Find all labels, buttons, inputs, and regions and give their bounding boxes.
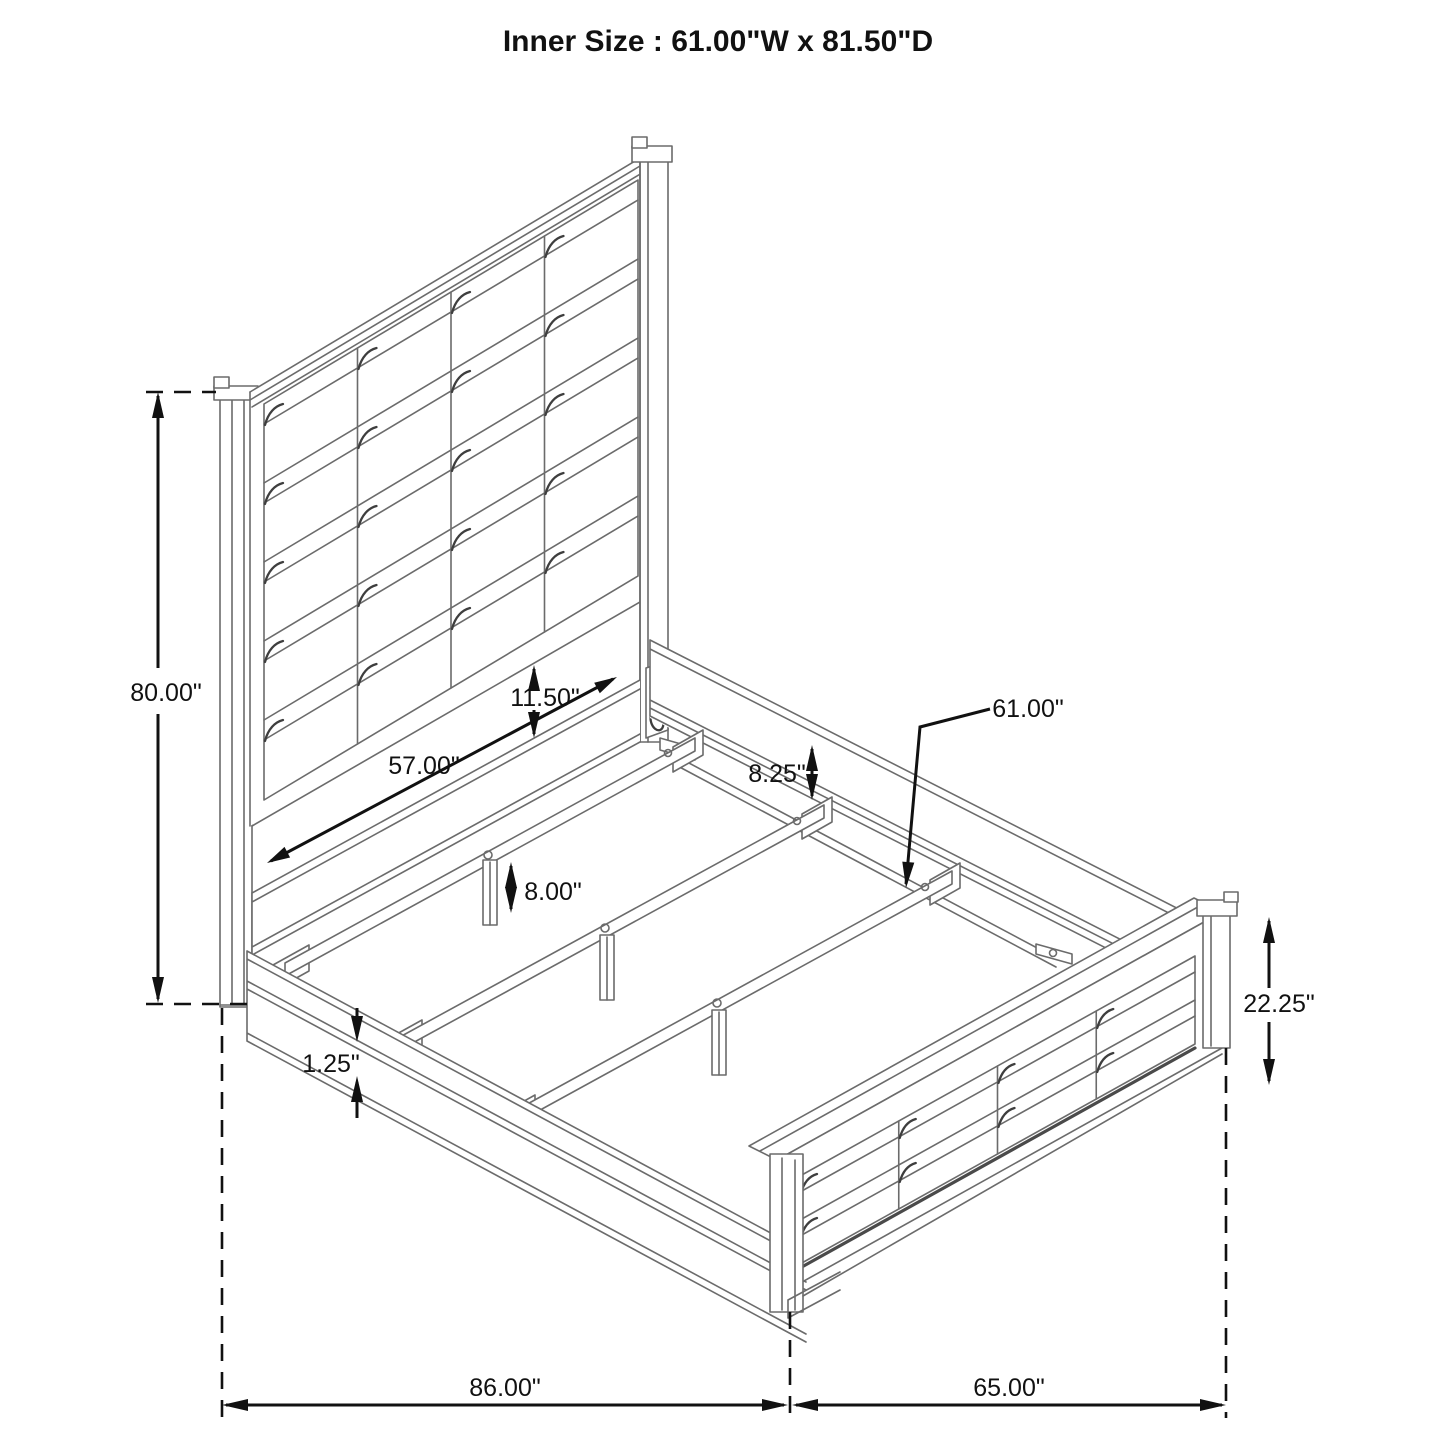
dim-headboard-height: 80.00"	[130, 679, 201, 707]
arrowhead-57-lower	[267, 847, 290, 863]
arrowhead-86-right	[762, 1399, 788, 1411]
dim-overall-width: 65.00"	[973, 1374, 1044, 1402]
slat-2-board	[398, 805, 824, 1051]
dim-headboard-span: 57.00"	[388, 752, 459, 780]
dim-overall-length: 86.00"	[469, 1374, 540, 1402]
footboard-right-post	[1203, 906, 1230, 1048]
arrowhead-65-right	[1200, 1399, 1226, 1411]
arrowhead-65-left	[792, 1399, 818, 1411]
arrowhead-800-down	[505, 887, 517, 913]
bed-dimension-diagram-page: 80.00" 11.50" 57.00" 8.25" 61.00" 8.00" …	[0, 0, 1445, 1445]
page-title: Inner Size : 61.00"W x 81.50"D	[503, 25, 933, 58]
arrowhead-80-up	[152, 392, 164, 418]
arrowhead-80-down	[152, 977, 164, 1003]
dim-rail-lip: 1.25"	[302, 1050, 360, 1078]
arrowhead-2225-down	[1263, 1059, 1275, 1085]
headboard-right-post-cap-notch	[632, 137, 647, 148]
dim-panel-gap: 11.50"	[510, 684, 580, 712]
arrowhead-1150-down	[528, 712, 540, 738]
headboard-left-post-cap-notch	[214, 377, 229, 388]
footboard-right-post-cap-notch	[1224, 892, 1238, 902]
arrowhead-800-up	[505, 862, 517, 888]
dim-leg-height: 8.00"	[524, 878, 582, 906]
headboard-left-post-face	[220, 388, 252, 1007]
arrowhead-86-left	[222, 1399, 248, 1411]
arrowhead-2225-up	[1263, 917, 1275, 943]
dim-rail-above-slat: 8.25"	[748, 760, 806, 788]
dim-footboard-height: 22.25"	[1243, 990, 1314, 1018]
footboard-left-post	[770, 1154, 803, 1312]
dim-slat-length: 61.00"	[992, 695, 1063, 723]
arrowhead-57-upper	[594, 677, 617, 693]
bed-dimension-diagram: 80.00" 11.50" 57.00" 8.25" 61.00" 8.00" …	[0, 0, 1445, 1445]
